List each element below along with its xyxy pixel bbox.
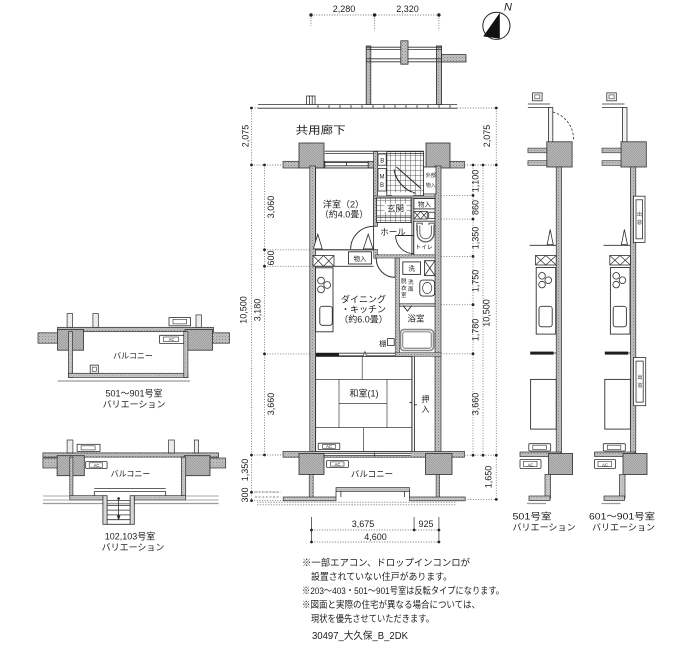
svg-text:入: 入 [422,405,430,414]
svg-text:バリエーション: バリエーション [103,400,166,410]
svg-text:1,100: 1,100 [471,170,481,193]
svg-text:AC: AC [169,337,175,342]
svg-text:501号室: 501号室 [513,511,552,522]
svg-text:面: 面 [408,286,414,293]
svg-text:30497_大久保_B_2DK: 30497_大久保_B_2DK [312,629,408,642]
svg-text:物入: 物入 [418,200,432,209]
svg-text:押: 押 [422,394,430,404]
svg-text:物入: 物入 [354,254,368,263]
svg-text:※図面と実際の住宅が異なる場合については、: ※図面と実際の住宅が異なる場合については、 [302,599,480,611]
svg-text:10,500: 10,500 [482,299,492,327]
svg-text:※一部エアコン、ドロップインコンロが: ※一部エアコン、ドロップインコンロが [302,557,470,569]
svg-text:B: B [380,183,384,189]
svg-text:出: 出 [637,211,642,218]
svg-text:棚: 棚 [379,339,386,348]
svg-text:3,180: 3,180 [253,299,263,322]
svg-text:・キッチン: ・キッチン [341,305,386,315]
svg-text:925: 925 [418,519,433,529]
svg-text:N: N [504,2,512,14]
svg-text:※203〜403・501〜901号室は反転タイプになります。: ※203〜403・501〜901号室は反転タイプになります。 [302,585,504,597]
svg-text:バルコニー: バルコニー [111,470,151,479]
svg-text:室: 室 [401,291,407,299]
svg-text:ダイニング: ダイニング [341,294,386,305]
svg-text:設置されていない住戸があります。: 設置されていない住戸があります。 [311,571,452,583]
svg-text:2,280: 2,280 [333,4,356,14]
svg-text:バルコニー: バルコニー [113,352,153,361]
svg-text:1,650: 1,650 [484,466,494,489]
svg-text:バリエーション: バリエーション [592,523,655,533]
svg-text:3,660: 3,660 [266,393,276,416]
svg-text:窓: 窓 [637,382,642,389]
svg-text:洗: 洗 [408,264,415,273]
svg-text:衣: 衣 [401,284,407,292]
svg-text:1,350: 1,350 [471,227,481,250]
svg-text:バルコニー: バルコニー [351,469,393,479]
svg-text:2,075: 2,075 [241,125,251,148]
svg-text:1,750: 1,750 [471,270,481,293]
svg-text:脱: 脱 [401,277,407,285]
svg-text:AC: AC [94,463,100,468]
svg-text:（約6.0畳）: （約6.0畳） [339,314,388,325]
svg-text:3,675: 3,675 [352,519,375,529]
svg-text:4,600: 4,600 [364,532,387,542]
svg-text:1,780: 1,780 [471,319,481,342]
svg-text:2,075: 2,075 [482,125,492,148]
svg-text:（約4.0畳）: （約4.0畳） [320,209,369,220]
svg-text:1,350: 1,350 [240,459,250,482]
svg-text:物入: 物入 [426,182,436,189]
svg-text:10,500: 10,500 [239,296,249,324]
svg-text:窓: 窓 [637,219,642,226]
svg-text:洗: 洗 [408,278,414,286]
svg-text:バリエーション: バリエーション [102,543,165,553]
svg-text:B: B [380,158,384,164]
svg-text:3,060: 3,060 [266,196,276,219]
svg-text:601〜901号室: 601〜901号室 [589,511,655,522]
svg-text:洋室（2）: 洋室（2） [323,199,364,210]
svg-text:浴室: 浴室 [407,314,425,324]
svg-text:外部: 外部 [426,172,436,179]
svg-text:860: 860 [471,200,481,215]
svg-text:600: 600 [266,250,276,265]
svg-text:現状を優先させていただきます。: 現状を優先させていただきます。 [311,613,434,625]
svg-text:3,660: 3,660 [471,393,481,416]
svg-text:玄関: 玄関 [387,204,404,214]
svg-text:和室(1): 和室(1) [350,388,379,399]
svg-text:300: 300 [240,487,250,502]
svg-text:2,320: 2,320 [396,4,419,14]
svg-text:102,103号室: 102,103号室 [105,531,156,542]
svg-text:AC: AC [528,462,534,467]
svg-text:M: M [380,175,385,181]
svg-text:出: 出 [637,374,642,381]
svg-text:バリエーション: バリエーション [513,523,576,533]
svg-text:501〜901号室: 501〜901号室 [105,388,162,399]
svg-text:トイレ: トイレ [415,245,433,251]
svg-text:AC: AC [602,462,608,467]
svg-text:AC: AC [335,462,341,467]
svg-text:共用廊下: 共用廊下 [296,124,346,137]
svg-text:AC: AC [326,444,332,449]
